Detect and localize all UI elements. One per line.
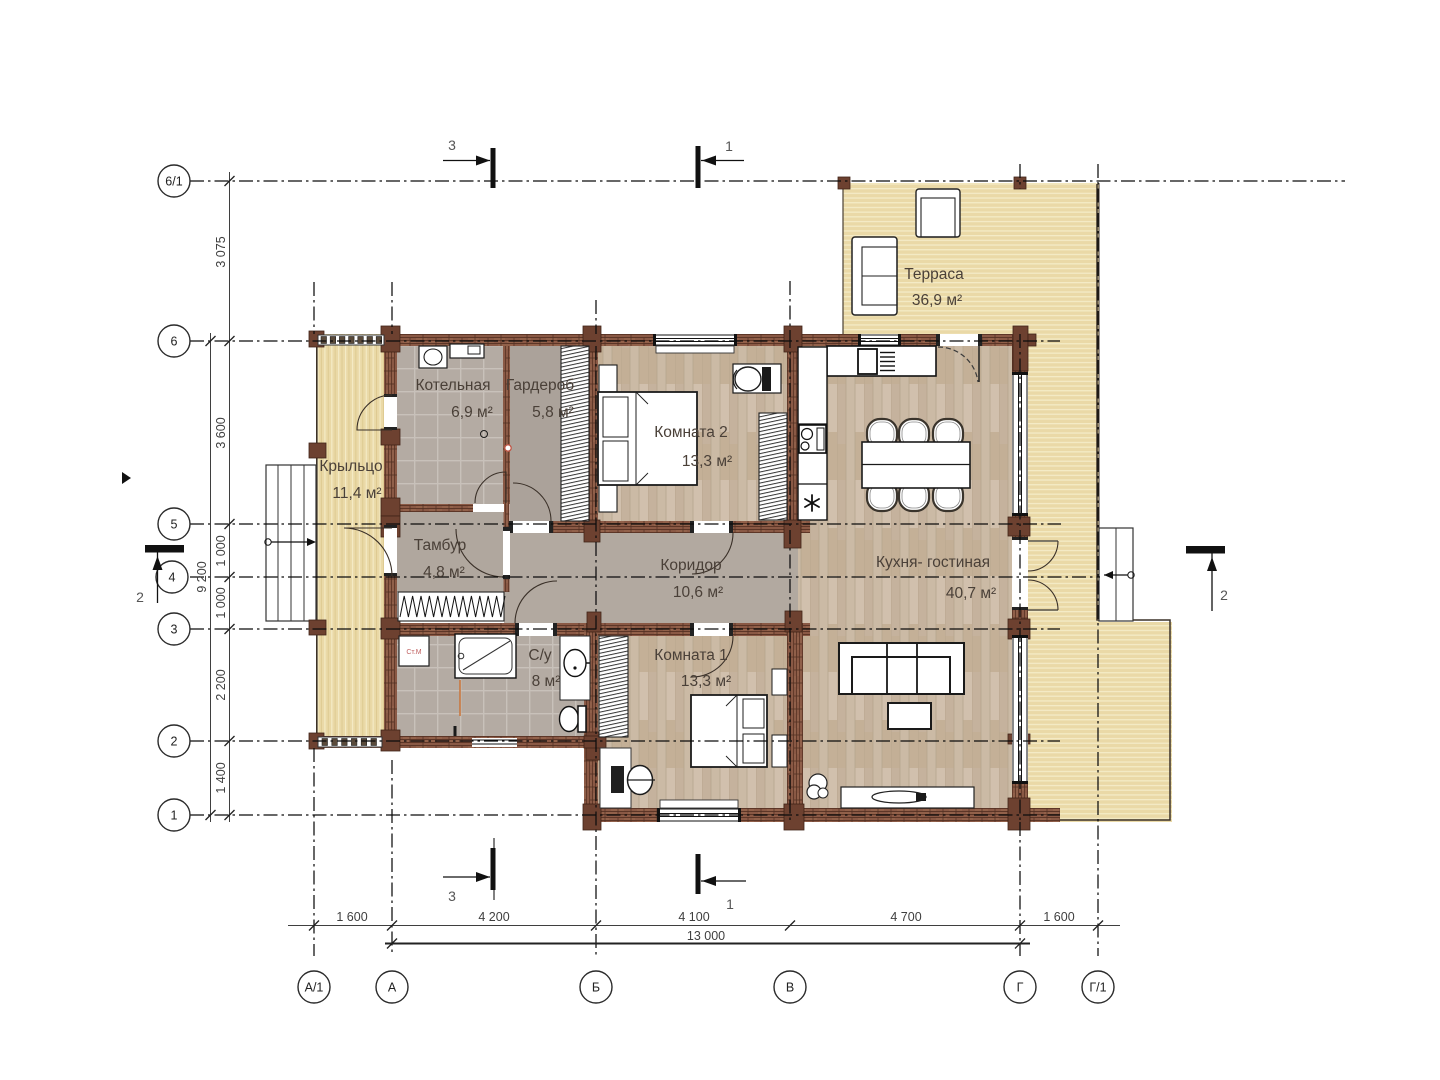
svg-text:4: 4 [169,571,176,585]
svg-text:Комната 2: Комната 2 [654,424,728,441]
svg-text:9 200: 9 200 [195,561,209,592]
svg-text:6/1: 6/1 [165,175,182,189]
svg-text:С/у: С/у [528,647,552,664]
svg-text:3: 3 [171,623,178,637]
svg-text:Б: Б [592,981,600,995]
svg-text:6,9 м²: 6,9 м² [451,404,493,421]
svg-text:13 000: 13 000 [687,929,725,943]
svg-text:8 м²: 8 м² [532,673,561,690]
svg-text:3: 3 [448,888,456,904]
svg-text:1: 1 [726,896,734,912]
svg-text:Тамбур: Тамбур [414,537,467,554]
svg-text:Котельная: Котельная [415,377,490,394]
svg-text:1: 1 [725,138,733,154]
svg-text:2: 2 [136,589,144,605]
svg-text:4 200: 4 200 [478,910,509,924]
svg-text:Г/1: Г/1 [1089,981,1106,995]
svg-text:Коридор: Коридор [660,557,721,574]
svg-text:36,9 м²: 36,9 м² [912,292,962,309]
svg-text:2 200: 2 200 [214,669,228,700]
svg-text:5: 5 [171,518,178,532]
svg-text:Гардероб: Гардероб [506,377,574,394]
svg-text:13,3 м²: 13,3 м² [682,453,732,470]
svg-text:3 600: 3 600 [214,417,228,448]
svg-text:40,7 м²: 40,7 м² [946,585,996,602]
svg-text:4 700: 4 700 [890,910,921,924]
svg-text:А/1: А/1 [305,981,324,995]
svg-text:1 600: 1 600 [1043,910,1074,924]
svg-text:2: 2 [171,735,178,749]
svg-text:3: 3 [448,137,456,153]
svg-text:4 100: 4 100 [678,910,709,924]
svg-text:Терраса: Терраса [904,266,964,283]
svg-text:1 000: 1 000 [214,535,228,566]
svg-text:11,4 м²: 11,4 м² [332,485,381,502]
svg-text:5,8 м²: 5,8 м² [532,404,574,421]
svg-text:1 600: 1 600 [336,910,367,924]
svg-text:10,6 м²: 10,6 м² [673,584,723,601]
svg-text:6: 6 [171,335,178,349]
svg-text:Крыльцо: Крыльцо [319,458,382,475]
svg-text:13,3 м²: 13,3 м² [681,673,731,690]
svg-text:4,8 м²: 4,8 м² [423,564,465,581]
svg-text:1: 1 [171,809,178,823]
svg-text:2: 2 [1220,587,1228,603]
svg-text:В: В [786,981,794,995]
svg-text:1 400: 1 400 [214,762,228,793]
svg-text:Ст.М: Ст.М [406,649,421,656]
svg-text:Кухня- гостиная: Кухня- гостиная [876,554,990,571]
svg-text:А: А [388,981,397,995]
svg-text:3 075: 3 075 [214,236,228,267]
svg-text:Г: Г [1017,981,1024,995]
svg-text:Комната 1: Комната 1 [654,647,728,664]
svg-text:1 000: 1 000 [214,587,228,618]
